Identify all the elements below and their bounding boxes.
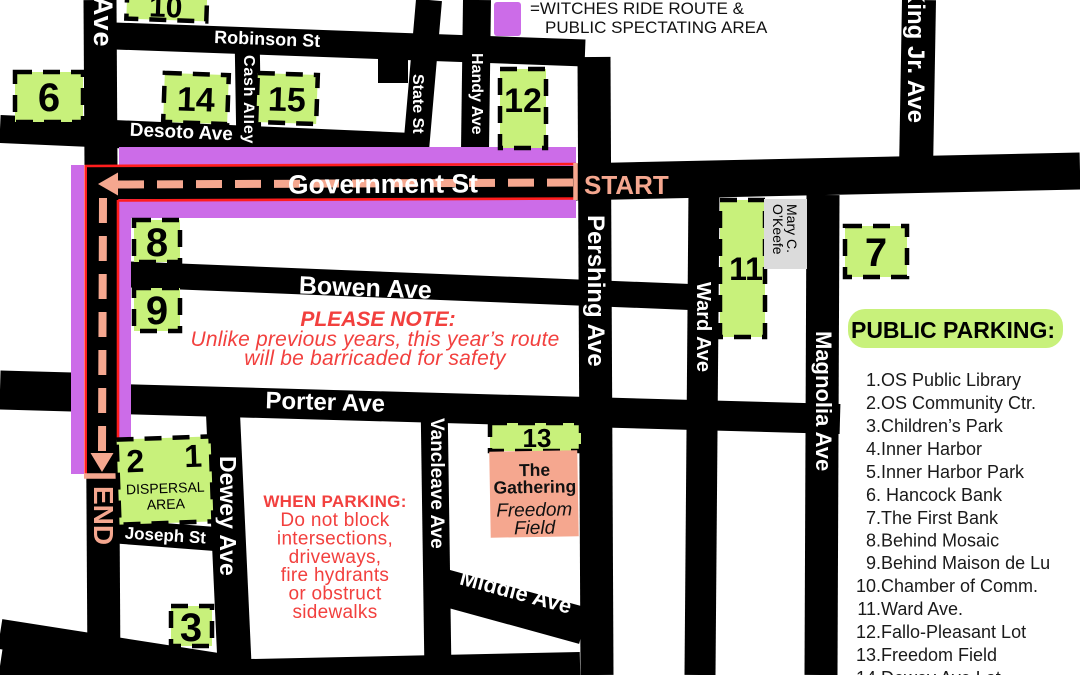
svg-text:Children’s Park: Children’s Park [881,416,1004,436]
svg-text:13.: 13. [856,645,881,665]
svg-text:11.: 11. [857,599,881,619]
svg-text:9.: 9. [866,553,881,573]
svg-text:Fallo-Pleasant Lot: Fallo-Pleasant Lot [881,622,1026,642]
svg-text:OS Community Ctr.: OS Community Ctr. [881,393,1036,413]
svg-text:Government St: Government St [288,168,478,199]
svg-text:6.: 6. [866,485,881,505]
svg-text:5.: 5. [866,462,881,482]
svg-text:Ward Ave: Ward Ave [692,282,714,372]
svg-text:Behind Mosaic: Behind Mosaic [881,531,999,551]
svg-text:3.: 3. [866,416,881,436]
svg-text:O’Keefe: O’Keefe [770,204,786,255]
svg-text:Dewey Ave: Dewey Ave [215,456,241,576]
svg-text:Gathering: Gathering [493,476,576,497]
svg-text:WHEN PARKING:: WHEN PARKING: [263,492,406,511]
svg-text:Bowen Ave: Bowen Ave [298,271,432,304]
svg-text:Ward Ave.: Ward Ave. [881,599,963,619]
svg-text:will be barricaded for safety: will be barricaded for safety [244,347,507,370]
svg-text:13: 13 [523,423,552,453]
svg-text:Pershing Ave: Pershing Ave [582,215,609,367]
svg-text:14.: 14. [856,668,881,675]
svg-text:6: 6 [38,76,60,120]
svg-text:State St: State St [409,74,426,134]
svg-text:AREA: AREA [147,495,186,512]
svg-text:Robinson St: Robinson St [214,27,321,51]
svg-text:8.: 8. [866,531,881,551]
svg-text:7: 7 [865,231,887,275]
svg-text:8: 8 [146,221,168,265]
svg-text:2: 2 [126,443,145,480]
svg-text:4.: 4. [866,439,881,459]
svg-text:PUBLIC PARKING:: PUBLIC PARKING: [851,317,1055,343]
svg-text:The First Bank: The First Bank [881,508,999,528]
svg-text:King Jr. Ave: King Jr. Ave [902,0,929,123]
svg-text:START: START [584,170,669,200]
svg-text:PUBLIC SPECTATING AREA: PUBLIC SPECTATING AREA [545,18,768,37]
svg-text:2.: 2. [866,393,881,413]
svg-text:Vancleave Ave: Vancleave Ave [426,418,447,549]
svg-text:14: 14 [176,80,215,119]
svg-text:DISPERSAL: DISPERSAL [126,479,205,498]
svg-text:Magnolia Ave: Magnolia Ave [811,331,836,471]
svg-text:END: END [88,486,119,545]
svg-text:Handy Ave: Handy Ave [468,53,485,135]
svg-text:Dewey Ave Lot: Dewey Ave Lot [881,668,1001,675]
svg-text:Field: Field [514,518,557,540]
svg-text:sidewalks: sidewalks [292,602,377,623]
svg-text:10: 10 [148,0,183,25]
svg-text:OS Public Library: OS Public Library [881,370,1021,390]
svg-text:10.: 10. [856,576,881,596]
svg-text:Freedom Field: Freedom Field [881,645,997,665]
svg-text:Ave: Ave [88,0,118,48]
svg-text:=WITCHES RIDE ROUTE &: =WITCHES RIDE ROUTE & [530,0,745,18]
svg-text:1.: 1. [866,370,881,390]
svg-text:Inner Harbor: Inner Harbor [881,439,982,459]
svg-text:12: 12 [504,82,542,120]
svg-text:Hancock Bank: Hancock Bank [886,485,1003,505]
svg-text:9: 9 [146,289,168,333]
svg-text:Inner Harbor Park: Inner Harbor Park [881,462,1025,482]
svg-text:1: 1 [184,438,203,475]
svg-text:Chamber of Comm.: Chamber of Comm. [881,576,1038,596]
svg-text:Porter Ave: Porter Ave [265,387,385,418]
svg-text:12.: 12. [856,622,881,642]
svg-text:Behind Maison de Lu: Behind Maison de Lu [881,553,1050,573]
svg-text:Cash Alley: Cash Alley [240,55,257,144]
svg-text:3: 3 [180,606,202,650]
svg-text:11: 11 [729,251,763,287]
svg-text:7.: 7. [866,508,881,528]
svg-text:15: 15 [267,80,306,119]
